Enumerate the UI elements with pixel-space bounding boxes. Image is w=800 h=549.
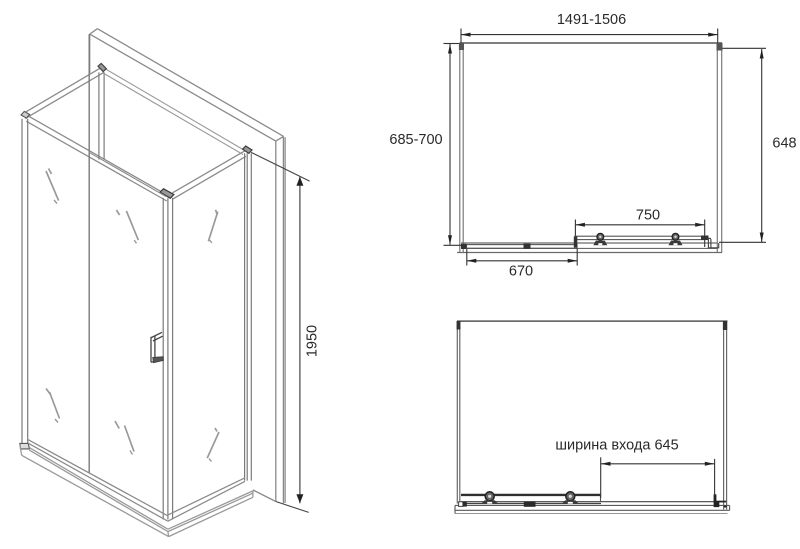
svg-text:1491-1506: 1491-1506: [557, 12, 626, 28]
svg-text:ширина входа 645: ширина входа 645: [555, 438, 678, 454]
svg-text:670: 670: [509, 264, 533, 280]
svg-text:1950: 1950: [305, 325, 321, 357]
svg-text:648: 648: [772, 136, 796, 152]
svg-text:750: 750: [636, 208, 660, 224]
svg-text:685-700: 685-700: [389, 132, 442, 148]
